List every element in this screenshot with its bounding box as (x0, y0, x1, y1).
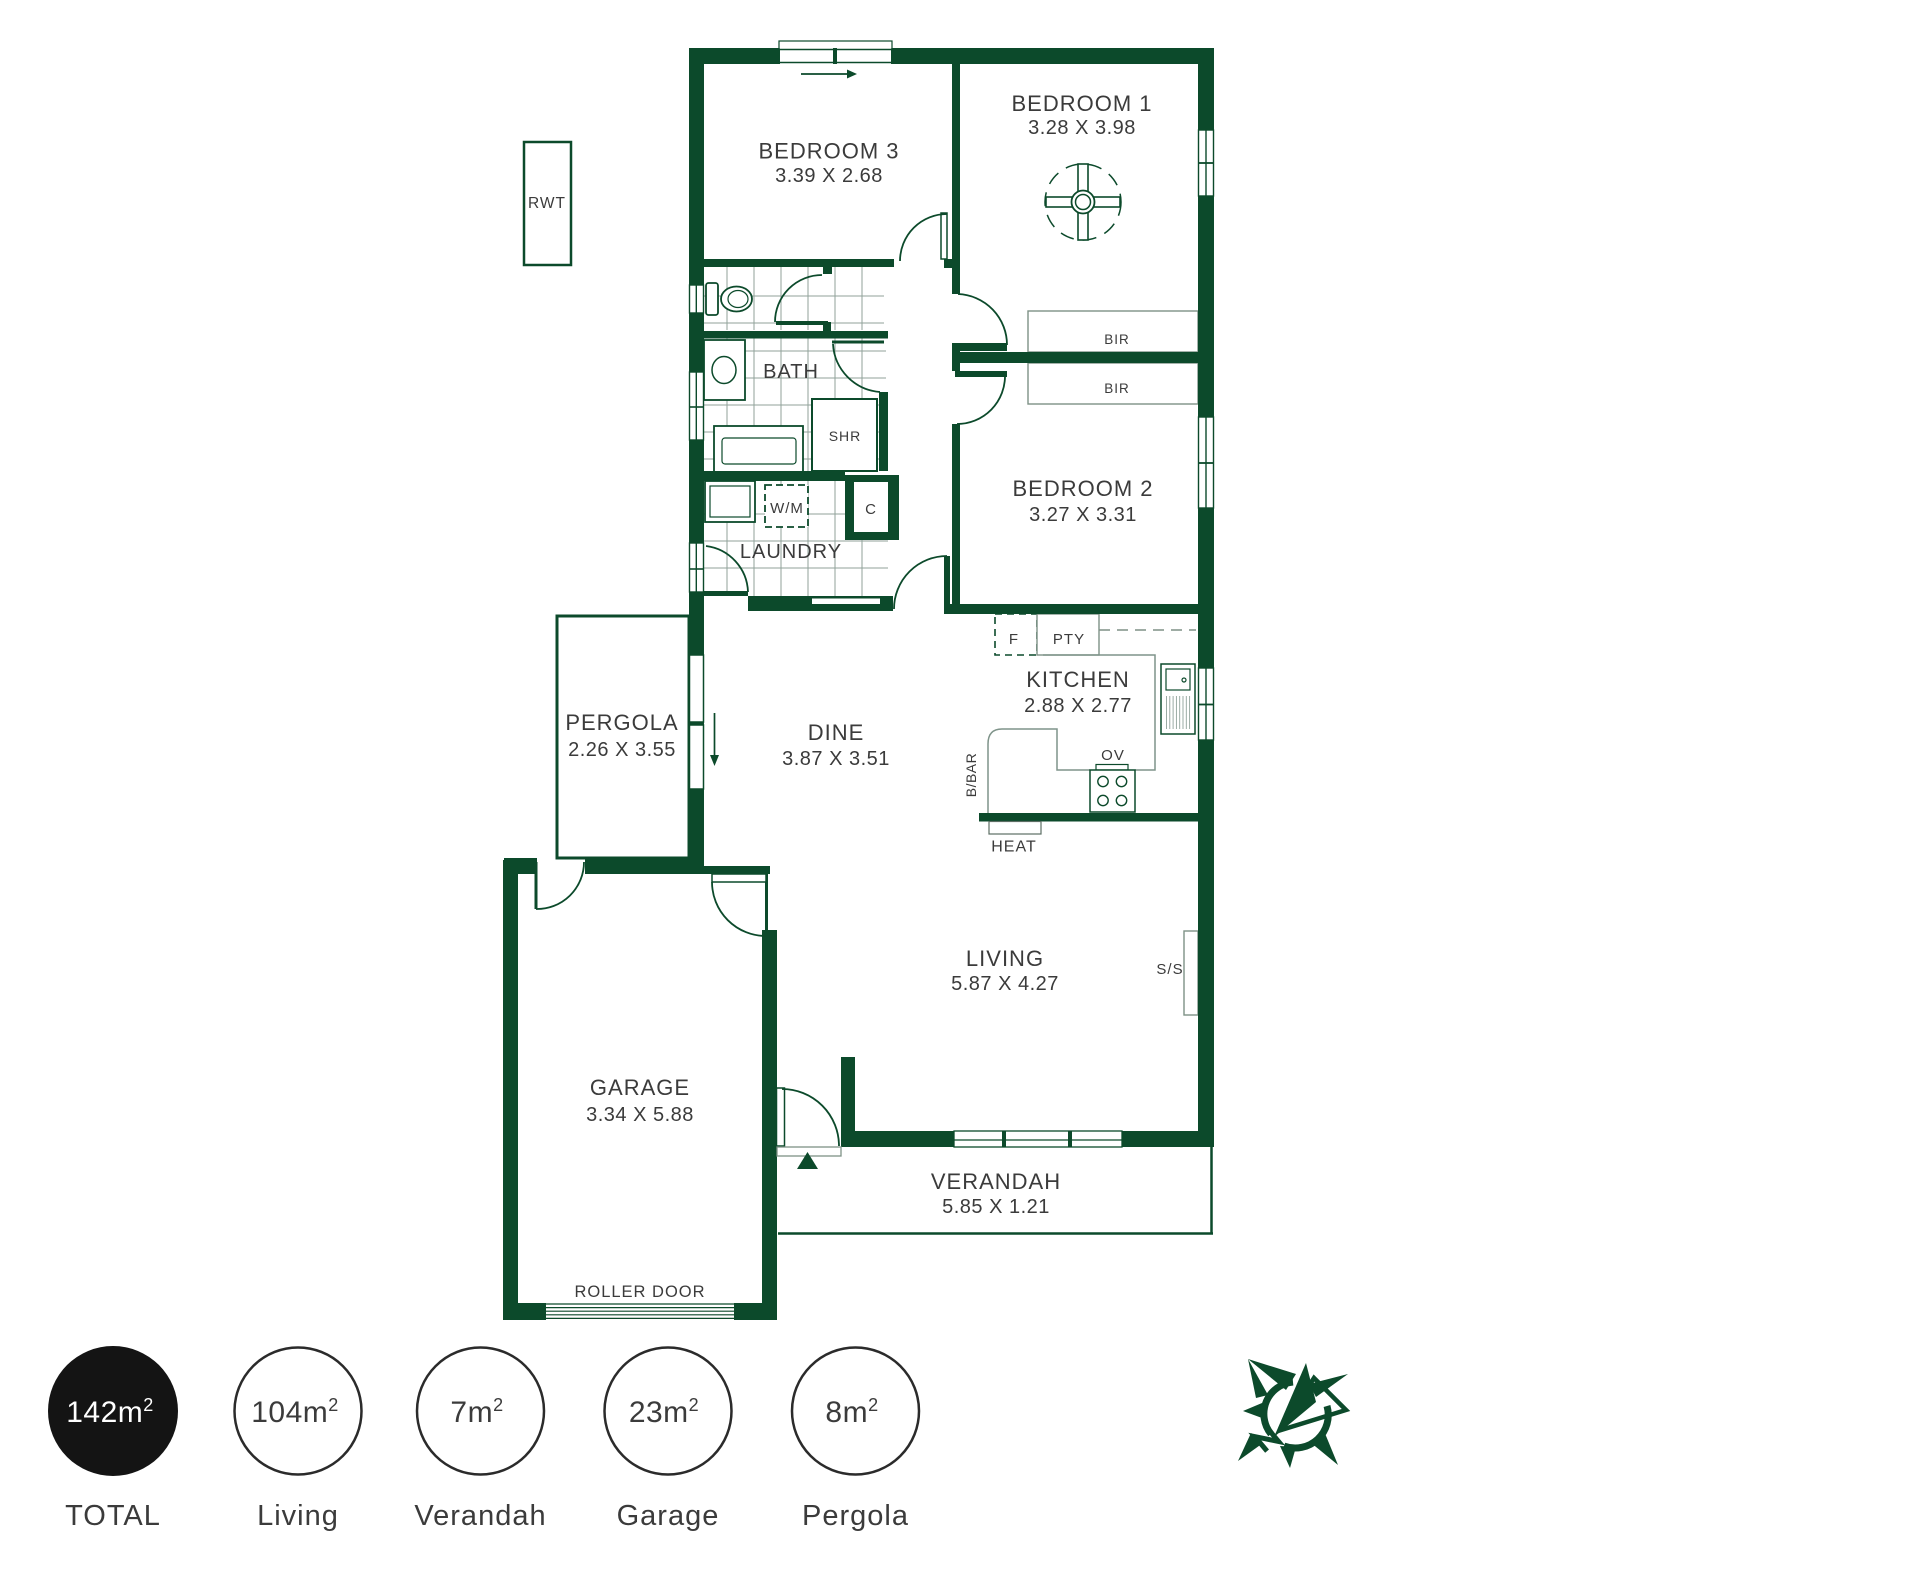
svg-text:LAUNDRY: LAUNDRY (740, 541, 842, 563)
svg-text:PERGOLA: PERGOLA (565, 710, 678, 735)
svg-text:Living: Living (257, 1500, 339, 1532)
svg-text:DINE: DINE (808, 720, 865, 745)
svg-text:ROLLER DOOR: ROLLER DOOR (574, 1283, 705, 1301)
svg-text:BEDROOM 3: BEDROOM 3 (758, 139, 899, 164)
svg-text:HEAT: HEAT (991, 839, 1036, 856)
svg-text:Garage: Garage (617, 1500, 720, 1532)
svg-text:BEDROOM 2: BEDROOM 2 (1012, 476, 1153, 501)
svg-text:5.87 X 4.27: 5.87 X 4.27 (951, 973, 1059, 995)
svg-text:B/BAR: B/BAR (963, 753, 979, 798)
svg-text:GARAGE: GARAGE (590, 1075, 690, 1100)
svg-text:Pergola: Pergola (802, 1500, 909, 1532)
svg-text:104m2: 104m2 (251, 1395, 339, 1429)
svg-text:W/M: W/M (770, 500, 804, 517)
svg-text:RWT: RWT (528, 195, 566, 212)
svg-text:TOTAL: TOTAL (65, 1500, 161, 1532)
svg-text:3.34 X 5.88: 3.34 X 5.88 (586, 1104, 694, 1126)
svg-text:PTY: PTY (1053, 631, 1085, 648)
svg-text:142m2: 142m2 (66, 1395, 154, 1429)
svg-text:S/S: S/S (1156, 961, 1183, 978)
svg-text:C: C (865, 501, 877, 518)
svg-text:3.28 X 3.98: 3.28 X 3.98 (1028, 117, 1136, 139)
svg-text:VERANDAH: VERANDAH (931, 1169, 1061, 1194)
svg-text:SHR: SHR (829, 428, 862, 444)
svg-text:LIVING: LIVING (966, 946, 1044, 971)
svg-text:F: F (1009, 631, 1019, 648)
svg-text:2.88 X 2.77: 2.88 X 2.77 (1024, 695, 1132, 717)
svg-text:23m2: 23m2 (629, 1395, 699, 1429)
svg-text:BATH: BATH (763, 361, 819, 383)
svg-text:3.87 X 3.51: 3.87 X 3.51 (782, 748, 890, 770)
svg-text:5.85 X 1.21: 5.85 X 1.21 (942, 1196, 1050, 1218)
svg-text:3.39 X 2.68: 3.39 X 2.68 (775, 165, 883, 187)
svg-text:BIR: BIR (1104, 381, 1130, 396)
svg-text:Verandah: Verandah (414, 1500, 546, 1532)
svg-text:2.26 X 3.55: 2.26 X 3.55 (568, 739, 676, 761)
svg-text:3.27 X 3.31: 3.27 X 3.31 (1029, 504, 1137, 526)
svg-text:OV: OV (1101, 747, 1125, 764)
svg-text:KITCHEN: KITCHEN (1026, 667, 1130, 692)
svg-text:BEDROOM 1: BEDROOM 1 (1011, 91, 1152, 116)
svg-text:BIR: BIR (1104, 332, 1130, 347)
